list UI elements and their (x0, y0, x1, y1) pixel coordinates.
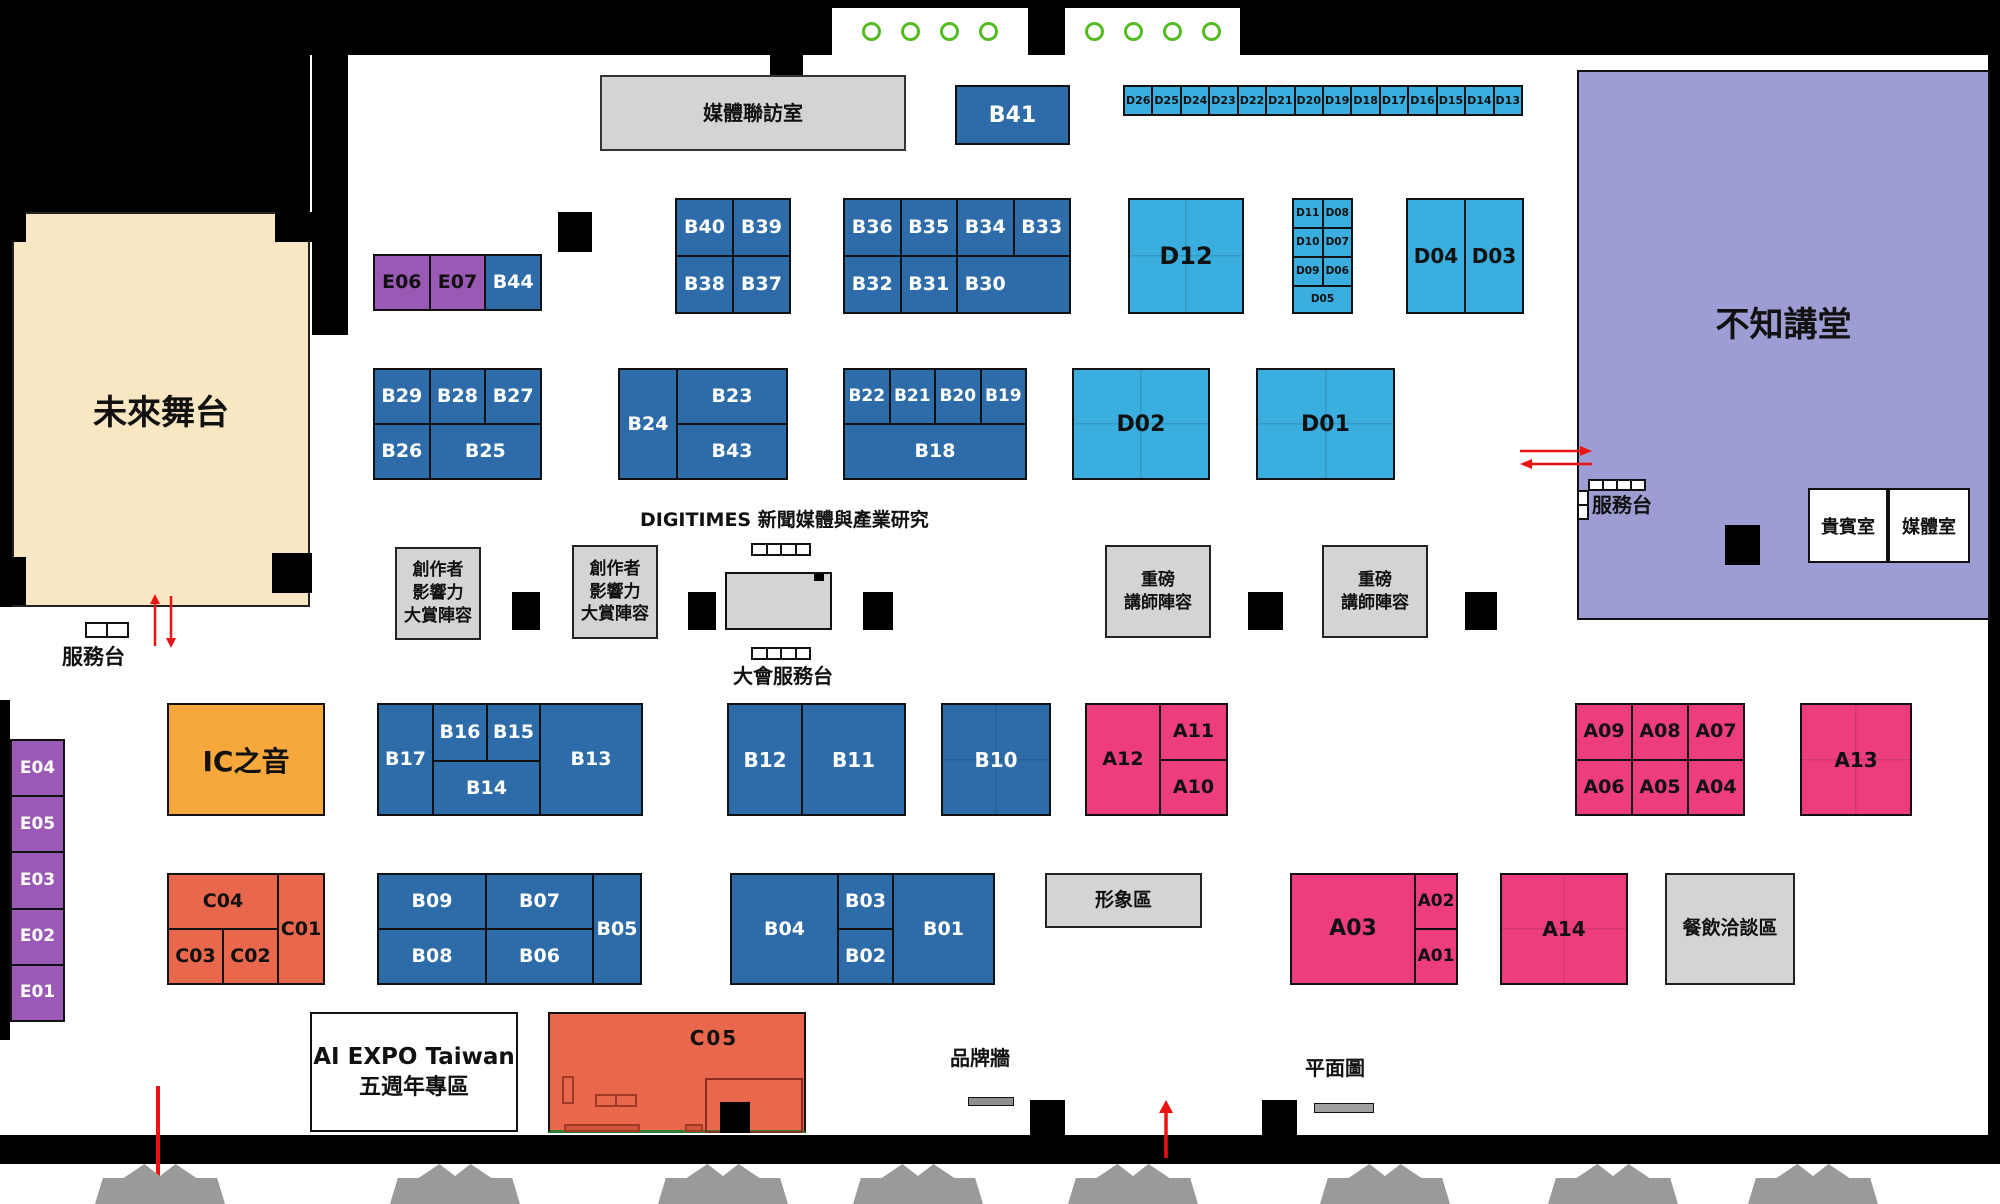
booth-cell: B37 (734, 257, 789, 312)
booth-cell: B03 (839, 875, 892, 928)
media-room-label: 媒體室 (1902, 513, 1956, 539)
service-desk-label: 服務台 (62, 641, 125, 671)
ic-voice-area: IC之音 (167, 703, 325, 816)
booth-cell: D23 (1210, 87, 1236, 114)
booth-cell: B04 (732, 875, 837, 983)
booth-cell: D05 (1294, 287, 1351, 313)
entrance-marker (658, 1164, 788, 1204)
booth-cell: E06 (375, 256, 429, 309)
pillar (1465, 592, 1497, 630)
creator-award-line: 大賞陣容 (581, 603, 649, 626)
booth-cell: D03 (1466, 200, 1522, 312)
green-circle-marker (979, 22, 998, 41)
booth-cell: B44 (486, 256, 540, 309)
booth-cell: D13 (1495, 87, 1521, 114)
booth-cell: B02 (839, 930, 892, 983)
creator-award-box: 創作者 影響力 大賞陣容 (572, 545, 658, 639)
booth-cell: E03 (12, 853, 63, 907)
booth-cell: E01 (12, 966, 63, 1020)
green-circle-marker (1085, 22, 1104, 41)
lecture-hall-label: 不知講堂 (1716, 297, 1852, 346)
booth-cell: B19 (982, 370, 1026, 423)
booth-cell: D04 (1408, 200, 1464, 312)
wall-bottom-band (0, 1135, 2000, 1164)
future-stage-label: 未來舞台 (93, 385, 229, 434)
pillar (688, 592, 716, 630)
booth-cell: C03 (169, 930, 222, 983)
booth-cell: C01 (279, 875, 323, 983)
booth-cell: A09 (1577, 705, 1631, 759)
future-stage-area: 未來舞台 (12, 212, 310, 607)
keynote-speaker-line: 講師陣容 (1124, 592, 1192, 615)
booth-block-e06: E06 E07 B44 (373, 254, 542, 311)
pillar (512, 592, 540, 630)
booth-block-b22: B22 B21 B20 B19 B18 (843, 368, 1027, 480)
booth-cell: E04 (12, 741, 63, 795)
booth-cell: B31 (902, 257, 957, 312)
creator-award-line: 創作者 (590, 558, 641, 581)
booth-cell: B34 (958, 200, 1013, 255)
booth-cell: A07 (1689, 705, 1743, 759)
booth-cell: B23 (678, 370, 786, 423)
booth-b41: B41 (955, 85, 1070, 145)
entrance-marker (1548, 1164, 1678, 1204)
booth-cell: B26 (375, 425, 429, 478)
image-area-box: 形象區 (1045, 873, 1202, 928)
floor-plan-marker (1314, 1103, 1374, 1113)
booth-cell: B35 (902, 200, 957, 255)
wall-left-stage (0, 215, 12, 607)
booth-cell: A05 (1633, 761, 1687, 815)
pillar (558, 212, 592, 252)
main-service-counter (751, 647, 811, 660)
booth-cell: C02 (224, 930, 277, 983)
booth-cell: B06 (487, 930, 592, 983)
service-desk-counter (85, 622, 129, 638)
booth-cell: D15 (1438, 87, 1464, 114)
booth-cell: D26 (1125, 87, 1151, 114)
booth-cell: D17 (1381, 87, 1407, 114)
booth-cell: B30 (958, 257, 1013, 312)
creator-award-line: 影響力 (590, 581, 641, 604)
booth-cell: D14 (1466, 87, 1492, 114)
booth-cell: D10 (1294, 229, 1322, 256)
wall-left-vertical-band (312, 0, 348, 335)
booth-cell: C04 (169, 875, 277, 928)
booth-cell: D08 (1324, 200, 1352, 227)
pillar (1248, 592, 1283, 630)
keynote-speaker-line: 講師陣容 (1341, 592, 1409, 615)
booth-cell: D21 (1267, 87, 1293, 114)
booth-cell: B12 (729, 705, 801, 814)
keynote-speaker-box: 重磅 講師陣容 (1105, 545, 1211, 638)
booth-cell: D22 (1239, 87, 1265, 114)
expo-floor-plan: 未來舞台 服務台 不知講堂 服務台 貴賓室 媒體室 媒體聯訪室 B41 D26 … (0, 0, 2000, 1204)
booth-a13: A13 (1800, 703, 1912, 816)
booth-cell: B01 (894, 875, 993, 983)
left-right-arrows-icon (1516, 442, 1598, 472)
booth-cell: B17 (379, 705, 432, 814)
image-area-label: 形象區 (1095, 888, 1152, 914)
booth-cell: B16 (434, 705, 486, 760)
booth-block-b40: B40 B39 B38 B37 (675, 198, 791, 314)
creator-award-box: 創作者 影響力 大賞陣容 (395, 547, 481, 640)
booth-block-a09: A09 A08 A07 A06 A05 A04 (1575, 703, 1745, 816)
booth-cell: B40 (677, 200, 732, 255)
booth-cell: A04 (1689, 761, 1743, 815)
stage-corner-notch (12, 557, 26, 605)
anniversary-line: 五週年專區 (359, 1073, 469, 1104)
booth-block-a12: A12 A11 A10 (1085, 703, 1228, 816)
furniture-outline (615, 1094, 637, 1107)
booth-d01: D01 (1256, 368, 1395, 480)
digitimes-area-label: DIGITIMES 新聞媒體與產業研究 (640, 505, 920, 532)
entrance-arrow-up-icon (1154, 1098, 1178, 1162)
pillar (720, 1102, 750, 1133)
creator-award-line: 創作者 (413, 559, 464, 582)
booth-cell: A11 (1161, 705, 1226, 759)
furniture-outline (564, 1124, 640, 1132)
booth-cell: E07 (431, 256, 485, 309)
booth-block-a03: A03 A02 A01 (1290, 873, 1458, 985)
booth-block-d04: D04 D03 (1406, 198, 1524, 314)
stage-corner-notch (12, 212, 26, 242)
stage-corner-notch (272, 553, 312, 593)
booth-cell: A12 (1087, 705, 1159, 814)
booth-cell: B28 (431, 370, 485, 423)
booth-c05-label: C05 (690, 1026, 739, 1050)
pillar (863, 592, 893, 630)
hall-service-desk-label: 服務台 (1592, 489, 1652, 518)
media-interview-room-label: 媒體聯訪室 (703, 100, 803, 127)
booth-cell: A01 (1416, 930, 1456, 983)
furniture-outline (562, 1076, 574, 1104)
booth-cell: B32 (845, 257, 900, 312)
entrance-marker (1748, 1164, 1878, 1204)
booth-a14: A14 (1500, 873, 1628, 985)
up-down-arrows-icon (144, 592, 180, 650)
keynote-speaker-line: 重磅 (1141, 569, 1175, 592)
booth-block-b04: B04 B03 B02 B01 (730, 873, 995, 985)
creator-award-line: 影響力 (413, 582, 464, 605)
pillar (1262, 1100, 1297, 1135)
booth-c05: C05 (548, 1012, 806, 1133)
booth-cell: B22 (845, 370, 889, 423)
creator-award-line: 大賞陣容 (404, 605, 472, 628)
booth-d12: D12 (1128, 198, 1244, 314)
booth-cell: B29 (375, 370, 429, 423)
stage-corner-notch (275, 212, 312, 242)
entrance-marker (390, 1164, 520, 1204)
brand-wall-label: 品牌牆 (950, 1042, 1010, 1071)
booth-cell-unlabeled (1015, 257, 1070, 312)
anniversary-line: AI EXPO Taiwan (313, 1041, 515, 1073)
booth-cell: D11 (1294, 200, 1322, 227)
ic-voice-label: IC之音 (203, 740, 290, 780)
desk-corner-mark (814, 574, 824, 581)
green-circle-marker (901, 22, 920, 41)
booth-cell: B13 (541, 705, 641, 814)
dining-area-box: 餐飲洽談區 (1665, 873, 1795, 985)
booth-cell: B15 (488, 705, 539, 760)
dining-area-label: 餐飲洽談區 (1682, 916, 1777, 942)
keynote-speaker-line: 重磅 (1358, 569, 1392, 592)
entrance-marker (1320, 1164, 1450, 1204)
booth-cell: B38 (677, 257, 732, 312)
booth-block-b29: B29 B28 B27 B26 B25 (373, 368, 542, 480)
green-circle-marker (940, 22, 959, 41)
main-service-desk-label: 大會服務台 (733, 660, 833, 689)
vip-room: 貴賓室 (1808, 488, 1888, 563)
booth-cell: D24 (1182, 87, 1208, 114)
pillar (1725, 525, 1760, 565)
main-service-desk (725, 572, 832, 630)
booth-cell: D19 (1324, 87, 1350, 114)
brand-wall-marker (968, 1097, 1014, 1106)
booth-cell: B20 (936, 370, 980, 423)
booth-cell: A10 (1161, 761, 1226, 815)
booth-cell: D09 (1294, 258, 1322, 285)
booth-cell: B11 (803, 705, 904, 814)
booth-d02: D02 (1072, 368, 1210, 480)
booth-cell: B05 (594, 875, 640, 983)
main-service-counter (751, 543, 811, 556)
booth-cell: B33 (1015, 200, 1070, 255)
booth-cell: B43 (678, 425, 786, 478)
booth-cell: E02 (12, 910, 63, 964)
booth-cell: A02 (1416, 875, 1456, 928)
booth-block-c: C04 C01 C03 C02 (167, 873, 325, 985)
booth-cell: B24 (620, 370, 676, 478)
booth-cell: A06 (1577, 761, 1631, 815)
hall-service-counter (1577, 490, 1589, 520)
booth-cell: D16 (1409, 87, 1435, 114)
entrance-marker (1068, 1164, 1198, 1204)
booth-block-b24: B24 B23 B43 (618, 368, 788, 480)
booth-cell: D20 (1296, 87, 1322, 114)
floor-plan-label: 平面圖 (1305, 1052, 1365, 1081)
booth-cell: B39 (734, 200, 789, 255)
furniture-outline (595, 1094, 617, 1107)
booth-cell: E05 (12, 797, 63, 851)
booth-cell: D18 (1352, 87, 1378, 114)
booth-block-b09: B09 B07 B05 B08 B06 (377, 873, 642, 985)
booth-b10: B10 (941, 703, 1051, 816)
booth-cell: B18 (845, 425, 1025, 478)
booth-cell: B36 (845, 200, 900, 255)
booth-cell: B08 (379, 930, 485, 983)
media-interview-room: 媒體聯訪室 (600, 75, 906, 151)
anniversary-zone: AI EXPO Taiwan 五週年專區 (310, 1012, 518, 1132)
booth-cell: D25 (1153, 87, 1179, 114)
booth-strip-d26-d13: D26 D25 D24 D23 D22 D21 D20 D19 D18 D17 … (1123, 85, 1523, 116)
booth-column-e: E04 E05 E03 E02 E01 (10, 739, 65, 1022)
top-wall-recess (832, 8, 1028, 55)
booth-cell: A03 (1292, 875, 1414, 983)
booth-cell: D07 (1324, 229, 1352, 256)
booth-block-b36: B36 B35 B34 B33 B32 B31 B30 (843, 198, 1071, 314)
booth-cell: B21 (891, 370, 935, 423)
green-circle-marker (1124, 22, 1143, 41)
media-room: 媒體室 (1888, 488, 1970, 563)
booth-block-b12: B12 B11 (727, 703, 906, 816)
booth-cell: B09 (379, 875, 485, 928)
wall-top-left-block (0, 0, 310, 215)
booth-cell: A08 (1633, 705, 1687, 759)
green-circle-marker (862, 22, 881, 41)
booth-cell: D06 (1324, 258, 1352, 285)
pillar (1030, 1100, 1065, 1135)
entrance-marker (853, 1164, 983, 1204)
booth-block-b17: B17 B16 B15 B14 B13 (377, 703, 643, 816)
furniture-outline (685, 1124, 703, 1132)
green-circle-marker (1202, 22, 1221, 41)
booth-block-d-mini: D11 D08 D10 D07 D09 D06 D05 (1292, 198, 1353, 314)
green-circle-marker (1163, 22, 1182, 41)
booth-cell: B25 (431, 425, 540, 478)
top-wall-recess (1065, 8, 1240, 55)
keynote-speaker-box: 重磅 講師陣容 (1322, 545, 1428, 638)
booth-cell: B14 (434, 762, 539, 814)
booth-cell: B27 (486, 370, 540, 423)
wall-left-lower (0, 700, 10, 1040)
vip-room-label: 貴賓室 (1821, 513, 1875, 539)
booth-cell: B07 (487, 875, 592, 928)
